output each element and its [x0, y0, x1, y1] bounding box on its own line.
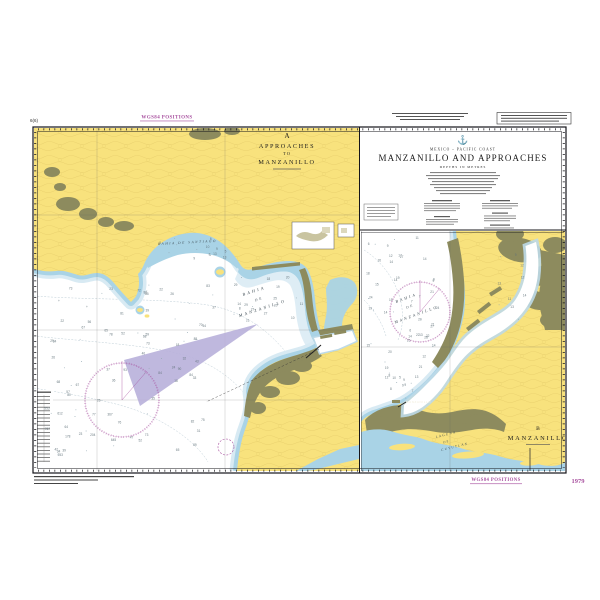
svg-text:83: 83 — [206, 284, 210, 288]
svg-text:32: 32 — [183, 357, 187, 361]
svg-text:6: 6 — [368, 242, 370, 246]
svg-text:8: 8 — [389, 374, 391, 378]
svg-text:22: 22 — [61, 319, 65, 323]
svg-text:43: 43 — [195, 360, 199, 364]
svg-text:72: 72 — [137, 288, 141, 292]
admiralty-crest-icon: ⚓ — [457, 134, 468, 145]
svg-text:64: 64 — [65, 425, 69, 429]
svg-text:22: 22 — [159, 287, 163, 291]
svg-text:67: 67 — [82, 326, 86, 330]
svg-text:553: 553 — [44, 407, 50, 411]
chart-sheet: + + — [0, 0, 600, 600]
svg-text:70: 70 — [199, 323, 203, 327]
svg-text:612: 612 — [57, 412, 63, 416]
svg-text:20: 20 — [378, 258, 382, 262]
svg-text:26: 26 — [52, 356, 56, 360]
svg-text:56: 56 — [88, 320, 92, 324]
panel-b-map: 2422149152727122119181392014226122120142… — [361, 226, 568, 471]
svg-text:33: 33 — [193, 376, 197, 380]
corner-reference: 6(6) — [30, 118, 39, 123]
svg-text:204: 204 — [90, 433, 96, 437]
svg-text:89: 89 — [193, 443, 197, 447]
svg-text:24: 24 — [172, 366, 176, 370]
svg-text:645: 645 — [111, 438, 117, 442]
svg-text:73: 73 — [69, 287, 73, 291]
svg-text:20: 20 — [286, 275, 290, 279]
svg-text:9: 9 — [216, 247, 218, 251]
svg-text:26: 26 — [97, 399, 101, 403]
top-right-note-box — [497, 113, 571, 125]
svg-text:12: 12 — [520, 263, 524, 267]
svg-text:9: 9 — [433, 279, 435, 283]
svg-text:12: 12 — [422, 354, 426, 358]
svg-text:78: 78 — [109, 332, 113, 336]
svg-text:84: 84 — [158, 371, 162, 375]
depths-note: DEPTHS IN METRES — [440, 165, 487, 169]
rock-symbol: + — [86, 305, 88, 309]
panel-a-map: + + — [34, 127, 359, 471]
svg-text:5: 5 — [225, 249, 227, 253]
svg-text:67: 67 — [76, 383, 80, 387]
svg-text:MANZANILLO: MANZANILLO — [258, 159, 315, 166]
wgs84-top-label: WGS84 POSITIONS — [141, 116, 192, 121]
top-center-note — [392, 113, 468, 120]
svg-text:14: 14 — [408, 335, 412, 339]
svg-text:B: B — [536, 426, 540, 432]
svg-text:39: 39 — [62, 448, 66, 452]
svg-text:15: 15 — [367, 344, 371, 348]
svg-text:13: 13 — [223, 256, 227, 260]
svg-text:90: 90 — [178, 367, 182, 371]
svg-text:31: 31 — [197, 429, 201, 433]
svg-text:84: 84 — [189, 373, 193, 377]
svg-text:MANZANILLO: MANZANILLO — [508, 435, 569, 442]
svg-text:14: 14 — [390, 260, 394, 264]
svg-text:88: 88 — [194, 337, 198, 341]
svg-text:5: 5 — [399, 376, 401, 380]
svg-text:10: 10 — [392, 376, 396, 380]
svg-text:75: 75 — [201, 418, 205, 422]
svg-text:18: 18 — [267, 277, 271, 281]
svg-text:15: 15 — [389, 298, 393, 302]
svg-text:65: 65 — [176, 448, 180, 452]
svg-text:9: 9 — [403, 378, 405, 382]
svg-text:13: 13 — [510, 305, 514, 309]
scale-note-bar — [526, 444, 550, 445]
svg-text:10: 10 — [206, 245, 210, 249]
svg-text:7: 7 — [419, 295, 421, 299]
svg-text:19: 19 — [369, 307, 373, 311]
svg-text:35: 35 — [151, 396, 155, 400]
svg-text:12: 12 — [521, 275, 525, 279]
svg-text:14: 14 — [237, 302, 241, 306]
svg-text:7: 7 — [412, 389, 414, 393]
svg-text:10: 10 — [291, 316, 295, 320]
svg-text:20: 20 — [418, 317, 422, 321]
svg-text:11: 11 — [508, 297, 512, 301]
main-title: MANZANILLO AND APPROACHES — [378, 153, 547, 163]
svg-text:11: 11 — [300, 302, 304, 306]
svg-text:18: 18 — [174, 379, 178, 383]
svg-text:40: 40 — [142, 352, 146, 356]
svg-text:15: 15 — [407, 338, 411, 342]
svg-text:21: 21 — [431, 323, 435, 327]
bottom-left-imprint — [34, 476, 134, 484]
label-town-manzanillo: MANZANILLO — [406, 400, 431, 404]
svg-text:14: 14 — [523, 294, 527, 298]
svg-text:12: 12 — [389, 254, 393, 258]
svg-text:11: 11 — [416, 236, 420, 240]
svg-text:28: 28 — [424, 335, 428, 339]
svg-text:9: 9 — [387, 244, 389, 248]
svg-text:73: 73 — [146, 341, 150, 345]
svg-text:29: 29 — [244, 303, 248, 307]
svg-text:8: 8 — [209, 252, 211, 256]
nautical-chart-svg: + + — [0, 0, 600, 600]
svg-text:21: 21 — [419, 365, 423, 369]
svg-text:14: 14 — [432, 344, 436, 348]
country-line: MEXICO – PACIFIC COAST — [430, 148, 496, 152]
scale-note-bar — [273, 169, 301, 170]
svg-text:37: 37 — [106, 368, 110, 372]
svg-text:19: 19 — [385, 366, 389, 370]
svg-text:65: 65 — [104, 328, 108, 332]
svg-text:8: 8 — [239, 307, 241, 311]
svg-text:57: 57 — [66, 390, 70, 394]
svg-text:39: 39 — [146, 309, 150, 313]
wgs84-bottom-subline — [470, 483, 522, 484]
svg-text:82: 82 — [191, 419, 195, 423]
svg-text:93: 93 — [123, 368, 127, 372]
svg-text:13: 13 — [419, 333, 423, 337]
svg-text:APPROACHES: APPROACHES — [259, 143, 315, 150]
svg-text:29: 29 — [234, 283, 238, 287]
svg-text:9: 9 — [193, 257, 195, 261]
svg-text:52: 52 — [139, 439, 143, 443]
svg-text:21: 21 — [430, 290, 434, 294]
svg-text:A: A — [284, 132, 289, 140]
svg-text:27: 27 — [264, 311, 268, 315]
svg-text:18: 18 — [176, 343, 180, 347]
svg-text:54: 54 — [203, 324, 207, 328]
svg-text:68: 68 — [57, 380, 61, 384]
chart-number: 1979 — [572, 478, 586, 485]
svg-text:9: 9 — [515, 253, 517, 257]
svg-text:34: 34 — [53, 340, 57, 344]
svg-text:14: 14 — [384, 311, 388, 315]
svg-text:68: 68 — [143, 334, 147, 338]
svg-text:23: 23 — [109, 287, 113, 291]
svg-text:52: 52 — [121, 332, 125, 336]
svg-text:24: 24 — [369, 295, 373, 299]
svg-text:21: 21 — [246, 319, 250, 323]
svg-text:8: 8 — [390, 387, 392, 391]
title-block-notes — [364, 172, 518, 228]
svg-text:81: 81 — [120, 311, 124, 315]
svg-text:15: 15 — [375, 282, 379, 286]
svg-text:76: 76 — [118, 421, 122, 425]
svg-text:13: 13 — [415, 375, 419, 379]
svg-text:6: 6 — [409, 328, 411, 332]
svg-text:19: 19 — [276, 285, 280, 289]
svg-text:9: 9 — [404, 383, 406, 387]
svg-text:23: 23 — [79, 432, 83, 436]
svg-text:37: 37 — [212, 306, 216, 310]
svg-text:767: 767 — [45, 427, 51, 431]
title-block: ⚓ MEXICO – PACIFIC COAST MANZANILLO AND … — [364, 134, 548, 228]
svg-text:26: 26 — [170, 292, 174, 296]
rock-symbol: + — [58, 299, 60, 303]
svg-text:367: 367 — [107, 413, 113, 417]
svg-text:20: 20 — [388, 350, 392, 354]
svg-text:19: 19 — [396, 276, 400, 280]
svg-text:13: 13 — [498, 281, 502, 285]
svg-text:36: 36 — [112, 378, 116, 382]
svg-text:77: 77 — [92, 413, 96, 417]
svg-text:14: 14 — [423, 257, 427, 261]
svg-text:18: 18 — [366, 272, 370, 276]
svg-text:253: 253 — [58, 453, 64, 457]
svg-text:42: 42 — [55, 448, 59, 452]
wgs84-top-subline — [140, 121, 194, 122]
svg-text:47: 47 — [130, 436, 134, 440]
svg-text:73: 73 — [145, 433, 149, 437]
svg-text:178: 178 — [65, 435, 71, 439]
svg-text:17: 17 — [398, 254, 402, 258]
wgs84-bottom-label: WGS84 POSITIONS — [471, 478, 520, 483]
svg-text:25: 25 — [273, 296, 277, 300]
svg-text:13: 13 — [213, 252, 217, 256]
svg-text:TO: TO — [283, 151, 291, 156]
